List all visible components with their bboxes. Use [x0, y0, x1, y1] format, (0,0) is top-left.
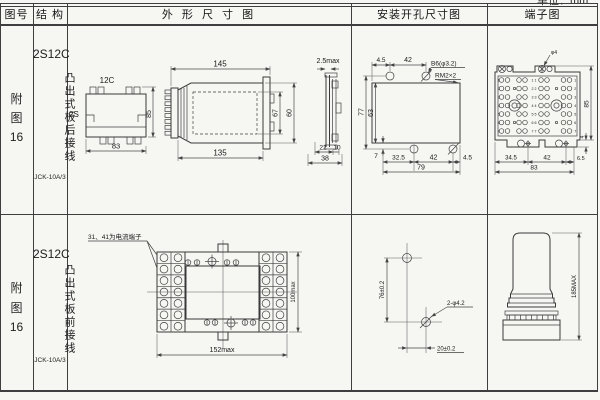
terminal-number: 4	[498, 104, 500, 108]
dim-bottom-total: 79	[417, 165, 425, 172]
dim-t-bottom-total: 83	[530, 165, 538, 172]
dim-foot-depth: 4	[580, 135, 586, 138]
terminal-number: 5 5	[532, 112, 537, 116]
terminal-number: 5	[574, 112, 576, 116]
terminal-number: 1 1	[532, 78, 537, 82]
header-mounting: 安装开孔尺寸图	[351, 7, 487, 23]
terminal-number: 1	[574, 78, 576, 82]
header-structure: 结 构	[33, 7, 67, 23]
model-row2: 2S12C	[33, 247, 67, 261]
drawing-sheet: 单位：mm 图号 结 构 外 形 尺 寸 图 安装开孔尺寸图 端子图 附 图 1…	[0, 0, 600, 400]
terminal-number: 2 2	[532, 87, 537, 91]
outline-drawing-front-wiring: 31、41为电流端子	[67, 214, 351, 392]
terminal-comb	[510, 315, 554, 320]
fig-char: 附	[0, 279, 33, 299]
terminal-number: 4 4	[532, 104, 537, 108]
dim-top-offset: 4.5	[376, 57, 385, 64]
mounting-drawing-front-wiring: 76±0.2 20±0.2 2-φ4.2	[351, 214, 487, 392]
mounting-drawing-rear-wiring: 4.5 42 B6(φ3.2) RM2×2 77 63 7 32.5 42 4.…	[351, 24, 487, 214]
dim-top-pitch: 42	[404, 57, 412, 64]
model-row1: 2S12C	[33, 47, 67, 61]
bottom-studs	[518, 140, 570, 147]
terminal-number: 3	[574, 95, 576, 99]
terminal-number: 5	[498, 112, 500, 116]
terminal-number: 6	[498, 121, 500, 125]
table-top-line	[0, 3, 598, 4]
terminal-number: 2	[574, 87, 576, 91]
fig-char: 附	[0, 90, 33, 109]
terminal-number: 3	[498, 95, 500, 99]
dim-bottom-d1: 32.5	[392, 155, 405, 162]
fig-char: 图	[0, 299, 33, 319]
rear-view: 12C 2S 85 83	[69, 76, 156, 154]
label-2s: 2S	[69, 110, 79, 119]
fig-number-row2: 附 图 16	[0, 279, 33, 338]
dim-side-outer-h: 60	[287, 109, 294, 117]
outline-drawing-rear-wiring: 12C 2S 85 83 145	[67, 24, 351, 214]
type-code-row2: JCK-10A/3	[33, 357, 67, 364]
terminal-number: 3 3	[532, 95, 537, 99]
side-view: 145 135 67 60	[165, 60, 297, 162]
edge-view: 2.5max 22 10 38	[308, 58, 342, 166]
terminal-number: 6	[574, 121, 576, 125]
dim-terminal-height-2: 185MAX	[572, 275, 578, 298]
fig-char: 16	[0, 128, 33, 147]
dim-side-top: 145	[213, 60, 227, 69]
dim-back-width: 83	[112, 142, 120, 151]
hole-note: B6(φ3.2)	[431, 61, 457, 68]
dim-hole-horizontal: 20±0.2	[437, 347, 456, 353]
terminal-grid: 111 1222 2333 3444 4555 5666 6777 7	[498, 78, 577, 134]
type-code-row1: JCK-10A/3	[33, 174, 67, 181]
terminal-number: 7 7	[532, 129, 537, 133]
terminal-number: 7	[498, 129, 500, 133]
terminal-number: 2	[498, 87, 500, 91]
label-12c: 12C	[100, 76, 115, 85]
dim-t-bottom-d2: 42	[543, 155, 551, 162]
terminal-drawing-front-wiring: 185MAX	[487, 214, 598, 392]
dim-edge-front: 22	[319, 145, 327, 152]
terminal-number: 1	[498, 78, 500, 82]
dim-height-outer: 77	[359, 108, 366, 116]
dim-bottom-edge: 7	[374, 153, 378, 160]
dim-terminal-height: 85	[584, 100, 591, 108]
dim-back-height: 85	[146, 110, 153, 118]
dim-t-bottom-d3: 6.5	[577, 156, 585, 162]
fig-number-row1: 附 图 16	[0, 90, 33, 147]
dim-edge-rear: 10	[333, 145, 341, 152]
terminal-drawing-rear-wiring: φ4 111 1222 2333 3444 4555 5666 6777 7 8…	[487, 24, 598, 214]
dim-front-width: 152max	[210, 347, 235, 354]
fig-char: 图	[0, 109, 33, 128]
dim-side-bottom: 135	[213, 149, 227, 158]
header-outline: 外 形 尺 寸 图	[67, 7, 351, 23]
current-terminal-note: 31、41为电流端子	[88, 232, 142, 241]
header-terminal: 端子图	[487, 7, 598, 23]
terminal-number: 7	[574, 129, 576, 133]
col-line-1	[33, 3, 34, 392]
dim-edge-total: 38	[321, 156, 329, 163]
dim-hole-vertical: 76±0.2	[380, 280, 386, 299]
fig-char: 16	[0, 318, 33, 338]
holes-note: 2-φ4.2	[447, 301, 465, 307]
dim-bottom-d3: 4.5	[463, 155, 472, 162]
dim-bottom-d2: 42	[430, 155, 438, 162]
dim-side-inner-h: 67	[273, 109, 280, 117]
dim-t-bottom-d1: 34.5	[505, 156, 517, 162]
stud-note: φ4	[551, 50, 557, 56]
dim-front-height: 100max	[291, 281, 297, 302]
dim-edge-thickness: 2.5max	[317, 58, 340, 65]
header-fig-no: 图号	[0, 7, 33, 23]
terminal-number: 6 6	[532, 121, 537, 125]
thread-note: RM2×2	[435, 73, 457, 80]
dim-height-inner: 63	[368, 109, 375, 117]
terminal-number: 4	[574, 104, 576, 108]
pin-comb	[165, 90, 171, 135]
